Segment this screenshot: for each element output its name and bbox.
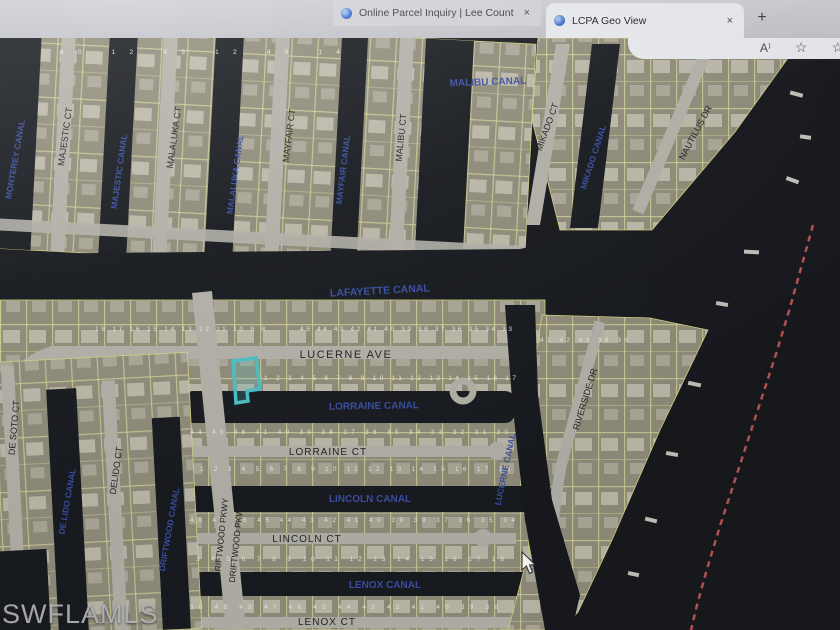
new-tab-button[interactable]: + [752, 8, 772, 28]
browser-tab-bar: Online Parcel Inquiry | Lee County × LCP… [0, 0, 840, 38]
street-label: LUCERNE AVE [300, 349, 393, 361]
browser-toolbar: A⁾ ☆ ☆ [628, 36, 840, 59]
favorites-star-icon[interactable]: ☆ [795, 39, 808, 56]
street-label: LINCOLN CT [272, 534, 341, 545]
read-aloud-icon[interactable]: A⁾ [760, 41, 771, 55]
tab-online-parcel-inquiry[interactable]: Online Parcel Inquiry | Lee County × [333, 0, 541, 26]
street-label: LENOX CT [298, 617, 356, 628]
canal-label: LINCOLN CANAL [329, 494, 411, 505]
canal-label: LORRAINE CANAL [329, 400, 419, 413]
tab-title: LCPA Geo View [572, 15, 717, 27]
collections-icon[interactable]: ☆ [831, 39, 840, 56]
street-label: LORRAINE CT [289, 447, 367, 458]
tab-favicon [554, 15, 565, 26]
tab-favicon [341, 8, 352, 19]
canal-label: LENOX CANAL [349, 580, 421, 591]
close-icon[interactable]: × [724, 15, 736, 27]
map-viewport[interactable]: 40 12 45 12 40 14 18 17 16 15 14 13 12 1… [0, 0, 840, 630]
close-icon[interactable]: × [521, 7, 533, 19]
mls-watermark: SWFLAMLS [2, 599, 159, 630]
tab-lcpa-geo-view[interactable]: LCPA Geo View × [546, 3, 744, 38]
aerial-parcel-map[interactable]: 40 12 45 12 40 14 18 17 16 15 14 13 12 1… [0, 0, 840, 630]
screenshot-root: 40 12 45 12 40 14 18 17 16 15 14 13 12 1… [0, 0, 840, 630]
tab-title: Online Parcel Inquiry | Lee County [359, 7, 514, 19]
